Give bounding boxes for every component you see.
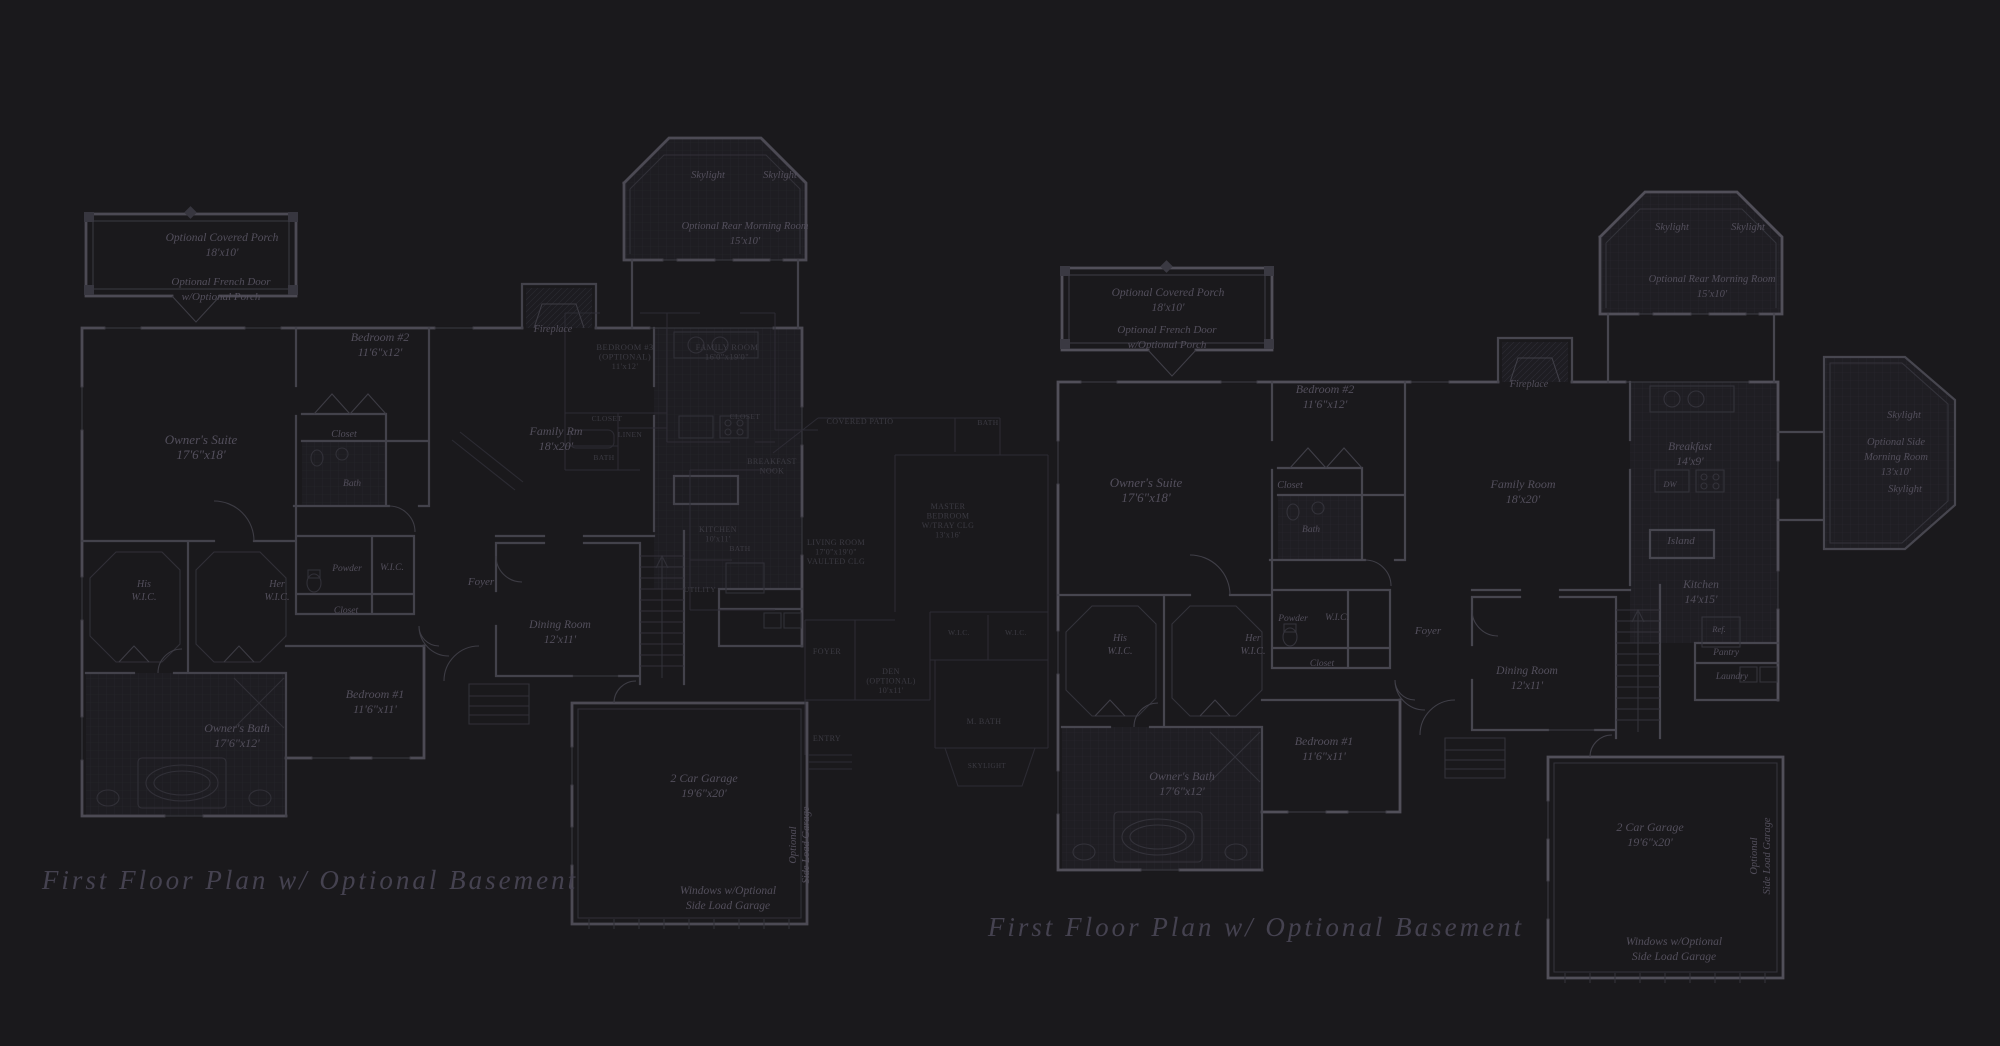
label-line: 14'x15'	[1684, 594, 1718, 606]
label-dw: DW	[1662, 479, 1677, 489]
label-line: Dining Room	[1495, 665, 1558, 677]
label-line: (OPTIONAL)	[866, 677, 915, 686]
label-line: 13'x16'	[935, 531, 961, 540]
label-laundry: Laundry	[1715, 672, 1749, 682]
label-line: Skylight	[1888, 484, 1923, 495]
label-line: 15'x10'	[730, 236, 761, 247]
label-line: BATH	[729, 544, 750, 553]
label-skylight: Skylight	[763, 170, 798, 181]
label-line: His	[1112, 633, 1127, 644]
label-line: W.I.C.	[1108, 646, 1133, 657]
floor-plan-canvas: Optional Covered Porch18'x10'Optional Fr…	[0, 0, 2000, 1046]
label-line: Skylight	[1887, 410, 1922, 421]
label-line: Windows w/Optional	[1626, 936, 1722, 948]
label-owner-s-suite: Owner's Suite17'6"x18'	[1110, 475, 1183, 505]
label-bedroom-1: Bedroom #111'6"x11'	[346, 687, 405, 716]
label-line: Optional Rear Morning Room	[682, 221, 809, 232]
label-line: M. BATH	[967, 717, 1002, 726]
label-skylight: Skylight	[1888, 484, 1923, 495]
label-optional: OptionalSide Load Garage	[788, 806, 812, 883]
label-line: Side Load Garage	[1632, 951, 1716, 963]
label-foyer: Foyer	[467, 576, 495, 588]
label-owner-s-suite: Owner's Suite17'6"x18'	[165, 432, 238, 462]
label-line: w/Optional Porch	[182, 291, 261, 303]
label-line: 11'6"x12'	[1303, 397, 1348, 411]
label-linen: LINEN	[618, 430, 643, 439]
label-line: FOYER	[813, 647, 841, 656]
label-line: LINEN	[618, 430, 643, 439]
label-bath: Bath	[1302, 525, 1320, 535]
label-line: 13'x10'	[1881, 467, 1912, 478]
label-line: Foyer	[467, 576, 495, 588]
label-line: SKYLIGHT	[968, 762, 1007, 770]
label-living-room: LIVING ROOM17'0"x19'0"VAULTED CLG	[807, 538, 865, 566]
label-island: Island	[1666, 535, 1695, 547]
label-line: BEDROOM #3	[596, 342, 653, 352]
plan-title-left: First Floor Plan w/ Optional Basement	[41, 865, 578, 895]
label-powder: Powder	[331, 564, 362, 574]
label-line: Owner's Suite	[1110, 475, 1183, 490]
label-line: Optional	[1749, 837, 1760, 874]
label-line: Family Room	[1490, 477, 1556, 491]
label-line: 18'x10'	[1151, 302, 1185, 314]
label-line: KITCHEN	[699, 525, 737, 534]
label-line: CLOSET	[730, 412, 761, 421]
label-bedroom-2: Bedroom #211'6"x12'	[351, 330, 410, 359]
label-line: Her	[1244, 633, 1261, 644]
label-line: UTILITY	[684, 585, 717, 594]
label-line: Ref.	[1711, 624, 1725, 634]
label-line: Laundry	[1715, 672, 1749, 682]
label-line: Owner's Suite	[165, 432, 238, 447]
label-line: Owner's Bath	[1149, 769, 1215, 783]
label-line: Fireplace	[1509, 379, 1549, 390]
label-line: 15'x10'	[1697, 289, 1728, 300]
label-family-room: FAMILY ROOM16'0"x19'0"	[696, 342, 759, 362]
label-bath: BATH	[593, 453, 614, 462]
label-optional-french-door: Optional French Doorw/Optional Porch	[1117, 324, 1217, 351]
label-line: Bedroom #2	[1296, 382, 1355, 396]
label-line: W.I.C.	[1005, 628, 1027, 637]
label-line: Closet	[1277, 480, 1303, 491]
label-line: Optional Rear Morning Room	[1649, 274, 1776, 285]
label-line: Side Load Garage	[686, 900, 770, 912]
label-line: Optional Covered Porch	[166, 232, 279, 244]
label-den: DEN(OPTIONAL)10'x11'	[866, 667, 915, 695]
label-fireplace: Fireplace	[533, 324, 573, 335]
label-line: Pantry	[1712, 648, 1740, 658]
label-line: Morning Room	[1863, 452, 1928, 463]
label-closet: CLOSET	[730, 412, 761, 421]
label-line: Optional French Door	[1117, 324, 1217, 336]
label-line: 12'x11'	[1511, 680, 1544, 692]
label-covered-patio: COVERED PATIO	[827, 417, 894, 426]
label-line: Optional Covered Porch	[1112, 287, 1225, 299]
label-bath: BATH	[729, 544, 750, 553]
label-line: W.I.C.	[1241, 646, 1266, 657]
label-w-i-c: W.I.C.	[948, 628, 970, 637]
label-w-i-c: W.I.C.	[380, 563, 404, 573]
label-line: Optional	[788, 826, 799, 863]
label-line: W.I.C.	[948, 628, 970, 637]
label-line: MASTER	[931, 502, 966, 511]
label-line: CLOSET	[592, 414, 623, 423]
label-entry: ENTRY	[813, 734, 841, 743]
label-line: Skylight	[1731, 222, 1766, 233]
label-line: 19'6"x20'	[1627, 835, 1673, 849]
label-skylight: SKYLIGHT	[968, 762, 1007, 770]
label-line: W/TRAY CLG	[922, 521, 975, 530]
label-bath: Bath	[343, 479, 361, 489]
label-2-car-garage: 2 Car Garage19'6"x20'	[670, 771, 738, 800]
label-line: Bedroom #2	[351, 330, 410, 344]
label-utility: UTILITY	[684, 585, 717, 594]
label-line: His	[136, 579, 151, 590]
label-m-bath: M. BATH	[967, 717, 1002, 726]
label-closet: Closet	[1310, 659, 1335, 669]
label-line: Her	[268, 579, 285, 590]
label-windows-w-optional: Windows w/OptionalSide Load Garage	[1626, 936, 1722, 963]
label-line: 17'6"x12'	[214, 736, 260, 750]
label-powder: Powder	[1277, 614, 1308, 624]
label-line: 17'0"x19'0"	[815, 548, 857, 557]
label-line: 10'x11'	[705, 535, 731, 544]
label-line: 17'6"x18'	[176, 447, 226, 462]
label-skylight: Skylight	[691, 170, 726, 181]
label-line: Powder	[331, 564, 362, 574]
label-line: FAMILY ROOM	[696, 342, 759, 352]
label-line: 18'x20'	[1506, 492, 1541, 506]
label-line: BATH	[977, 418, 998, 427]
label-dining-room: Dining Room12'x11'	[528, 619, 591, 646]
label-2-car-garage: 2 Car Garage19'6"x20'	[1616, 820, 1684, 849]
label-skylight: Skylight	[1731, 222, 1766, 233]
label-line: ENTRY	[813, 734, 841, 743]
label-windows-w-optional: Windows w/OptionalSide Load Garage	[680, 885, 776, 912]
label-dining-room: Dining Room12'x11'	[1495, 665, 1558, 692]
label-his: HisW.I.C.	[132, 579, 157, 603]
label-foyer: FOYER	[813, 647, 841, 656]
plan-title-right: First Floor Plan w/ Optional Basement	[987, 912, 1524, 942]
label-line: DEN	[882, 667, 900, 676]
label-line: 19'6"x20'	[681, 786, 727, 800]
label-line: 11'6"x11'	[1302, 749, 1346, 763]
label-foyer: Foyer	[1414, 625, 1442, 637]
label-line: Skylight	[763, 170, 798, 181]
label-family-room: Family Room18'x20'	[1490, 477, 1556, 506]
label-line: W.I.C.	[380, 563, 404, 573]
label-line: Bath	[343, 479, 361, 489]
label-w-i-c: W.I.C.	[1005, 628, 1027, 637]
label-line: (OPTIONAL)	[599, 352, 651, 362]
label-line: W.I.C.	[132, 592, 157, 603]
label-line: 16'0"x19'0"	[705, 352, 749, 362]
label-line: 10'x11'	[878, 686, 904, 695]
label-bedroom-3: BEDROOM #3(OPTIONAL)11'x12'	[596, 342, 653, 371]
label-ref: Ref.	[1711, 624, 1725, 634]
label-line: BEDROOM	[927, 512, 970, 521]
label-line: 2 Car Garage	[1616, 820, 1684, 834]
label-line: Breakfast	[1668, 441, 1712, 453]
label-line: Windows w/Optional	[680, 885, 776, 897]
label-line: Owner's Bath	[204, 721, 270, 735]
label-line: Skylight	[691, 170, 726, 181]
label-line: Closet	[1310, 659, 1335, 669]
label-line: VAULTED CLG	[807, 557, 865, 566]
label-closet: Closet	[334, 606, 359, 616]
label-line: BATH	[593, 453, 614, 462]
label-line: DW	[1662, 479, 1677, 489]
label-line: COVERED PATIO	[827, 417, 894, 426]
label-line: Powder	[1277, 614, 1308, 624]
label-closet: Closet	[331, 429, 357, 440]
label-line: Side Load Garage	[801, 806, 812, 883]
label-line: Closet	[331, 429, 357, 440]
label-his: HisW.I.C.	[1108, 633, 1133, 657]
label-line: Optional French Door	[171, 276, 271, 288]
label-line: 11'6"x12'	[358, 345, 403, 359]
label-line: 17'6"x12'	[1159, 784, 1205, 798]
label-line: 11'6"x11'	[353, 702, 397, 716]
label-line: Bedroom #1	[346, 687, 405, 701]
label-line: Optional Side	[1867, 437, 1925, 448]
label-line: 12'x11'	[544, 634, 577, 646]
label-w-i-c: W.I.C.	[1325, 613, 1349, 623]
label-line: W.I.C.	[1325, 613, 1349, 623]
label-skylight: Skylight	[1655, 222, 1690, 233]
label-pantry: Pantry	[1712, 648, 1740, 658]
label-family-rm: Family Rm18'x20'	[529, 424, 583, 453]
label-line: Kitchen	[1682, 579, 1719, 591]
label-skylight: Skylight	[1887, 410, 1922, 421]
label-line: 14'x9'	[1676, 456, 1704, 468]
label-bath: BATH	[977, 418, 998, 427]
label-line: 2 Car Garage	[670, 771, 738, 785]
label-line: W.I.C.	[265, 592, 290, 603]
label-line: Foyer	[1414, 625, 1442, 637]
label-line: Island	[1666, 535, 1695, 547]
label-line: Side Load Garage	[1762, 817, 1773, 894]
label-line: Skylight	[1655, 222, 1690, 233]
label-line: 18'x20'	[539, 439, 574, 453]
label-line: 17'6"x18'	[1121, 490, 1171, 505]
label-closet: CLOSET	[592, 414, 623, 423]
label-optional: OptionalSide Load Garage	[1749, 817, 1773, 894]
label-master: MASTERBEDROOMW/TRAY CLG13'x16'	[922, 502, 975, 540]
label-fireplace: Fireplace	[1509, 379, 1549, 390]
label-line: BREAKFAST	[747, 457, 797, 466]
label-line: Dining Room	[528, 619, 591, 631]
label-line: 11'x12'	[612, 361, 639, 371]
label-line: 18'x10'	[205, 247, 239, 259]
label-bedroom-2: Bedroom #211'6"x12'	[1296, 382, 1355, 411]
label-line: w/Optional Porch	[1128, 339, 1207, 351]
label-closet: Closet	[1277, 480, 1303, 491]
label-optional-covered-porch: Optional Covered Porch18'x10'	[1112, 287, 1225, 314]
label-line: Bath	[1302, 525, 1320, 535]
label-line: Closet	[334, 606, 359, 616]
label-line: Bedroom #1	[1295, 734, 1354, 748]
label-bedroom-1: Bedroom #111'6"x11'	[1295, 734, 1354, 763]
label-line: Family Rm	[529, 424, 583, 438]
label-optional-covered-porch: Optional Covered Porch18'x10'	[166, 232, 279, 259]
label-line: NOOK	[760, 467, 785, 476]
label-line: Fireplace	[533, 324, 573, 335]
label-line: LIVING ROOM	[807, 538, 865, 547]
